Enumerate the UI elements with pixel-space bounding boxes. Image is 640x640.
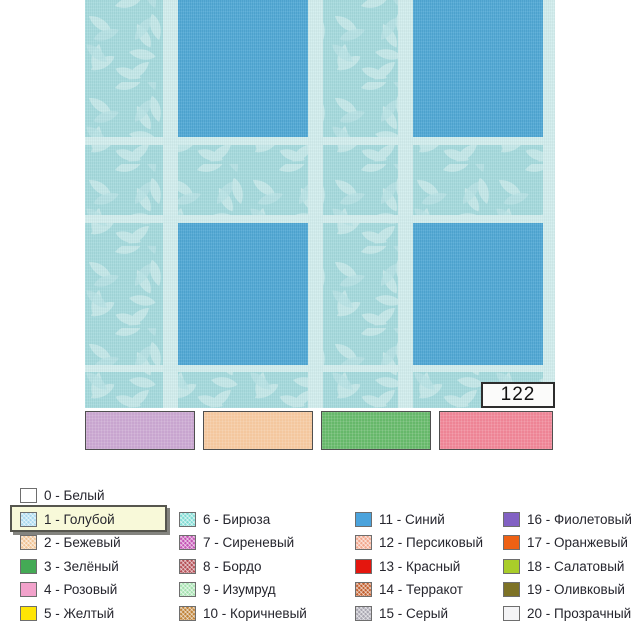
legend-item-15[interactable]: 15 - Серый — [355, 602, 483, 626]
light-stripe — [543, 0, 555, 408]
color-swatch — [179, 606, 196, 621]
legend-item-8[interactable]: 8 - Бордо — [179, 555, 307, 579]
legend-item-5[interactable]: 5 - Желтый — [20, 602, 121, 626]
legend-column-2: 6 - Бирюза 7 - Сиреневый 8 - Бордо 9 - И… — [179, 508, 307, 626]
fabric-pattern-sample: 122 — [85, 0, 555, 408]
pattern-code: 122 — [501, 384, 536, 406]
color-swatch — [503, 559, 520, 574]
legend-item-18[interactable]: 18 - Салатовый — [503, 555, 632, 579]
color-swatch — [179, 535, 196, 550]
legend-item-label: 0 - Белый — [44, 488, 105, 503]
light-stripe — [85, 215, 555, 223]
legend-item-19[interactable]: 19 - Оливковый — [503, 578, 632, 602]
color-swatch — [355, 559, 372, 574]
legend-column-1: 0 - Белый 1 - Голубой 2 - Бежевый 3 - Зе… — [20, 484, 121, 625]
blue-square — [178, 223, 308, 365]
light-stripe — [308, 0, 323, 408]
legend-item-6[interactable]: 6 - Бирюза — [179, 508, 307, 532]
legend-item-14[interactable]: 14 - Терракот — [355, 578, 483, 602]
legend-item-label: 1 - Голубой — [44, 512, 115, 527]
light-stripe — [85, 365, 555, 372]
legend-item-label: 15 - Серый — [379, 606, 448, 621]
legend-item-label: 13 - Красный — [379, 559, 460, 574]
legend-item-4[interactable]: 4 - Розовый — [20, 578, 121, 602]
legend-item-label: 17 - Оранжевый — [527, 535, 628, 550]
legend-item-13[interactable]: 13 - Красный — [355, 555, 483, 579]
pattern-code-box: 122 — [481, 382, 555, 408]
blue-square — [413, 223, 543, 365]
color-swatch — [179, 582, 196, 597]
legend-item-label: 18 - Салатовый — [527, 559, 624, 574]
color-swatch — [20, 606, 37, 621]
legend-column-3: 11 - Синий 12 - Персиковый 13 - Красный … — [355, 508, 483, 626]
color-swatch — [179, 559, 196, 574]
legend-item-label: 11 - Синий — [379, 512, 445, 527]
color-swatch — [503, 582, 520, 597]
legend-item-11[interactable]: 11 - Синий — [355, 508, 483, 532]
legend-item-label: 19 - Оливковый — [527, 582, 625, 597]
sample-swatch-green[interactable] — [321, 411, 431, 450]
color-swatch — [355, 512, 372, 527]
color-swatch — [20, 559, 37, 574]
legend-item-2[interactable]: 2 - Бежевый — [20, 531, 121, 555]
legend-item-12[interactable]: 12 - Персиковый — [355, 531, 483, 555]
color-swatch — [355, 606, 372, 621]
legend-item-label: 14 - Терракот — [379, 582, 463, 597]
color-swatch — [503, 606, 520, 621]
color-swatch — [20, 512, 37, 527]
light-stripe — [85, 137, 555, 145]
legend-item-label: 20 - Прозрачный — [527, 606, 631, 621]
legend-item-label: 9 - Изумруд — [203, 582, 276, 597]
light-stripe — [163, 0, 178, 408]
color-swatch — [503, 512, 520, 527]
legend-item-16[interactable]: 16 - Фиолетовый — [503, 508, 632, 532]
legend-item-3[interactable]: 3 - Зелёный — [20, 555, 121, 579]
light-stripe — [398, 0, 413, 408]
legend-item-17[interactable]: 17 - Оранжевый — [503, 531, 632, 555]
legend-item-label: 10 - Коричневый — [203, 606, 307, 621]
color-swatch — [20, 488, 37, 503]
legend-item-label: 12 - Персиковый — [379, 535, 483, 550]
color-swatch — [20, 582, 37, 597]
legend-item-label: 7 - Сиреневый — [203, 535, 294, 550]
legend-item-label: 16 - Фиолетовый — [527, 512, 632, 527]
legend-item-label: 6 - Бирюза — [203, 512, 270, 527]
legend-item-0[interactable]: 0 - Белый — [20, 484, 121, 508]
legend-item-7[interactable]: 7 - Сиреневый — [179, 531, 307, 555]
legend-item-label: 8 - Бордо — [203, 559, 261, 574]
color-swatch — [179, 512, 196, 527]
legend-item-label: 5 - Желтый — [44, 606, 114, 621]
catalog-page: { "pattern": { "code": "122", "colors": … — [0, 0, 640, 640]
legend-item-label: 3 - Зелёный — [44, 559, 119, 574]
blue-square — [413, 0, 543, 137]
legend-column-4: 16 - Фиолетовый 17 - Оранжевый 18 - Сала… — [503, 508, 632, 626]
legend-item-label: 4 - Розовый — [44, 582, 117, 597]
legend-item-9[interactable]: 9 - Изумруд — [179, 578, 307, 602]
blue-square — [178, 0, 308, 137]
sample-swatch-lilac[interactable] — [85, 411, 195, 450]
legend-item-10[interactable]: 10 - Коричневый — [179, 602, 307, 626]
legend-item-1-selected[interactable]: 1 - Голубой — [20, 508, 121, 532]
sample-swatch-peach[interactable] — [203, 411, 313, 450]
color-swatch — [20, 535, 37, 550]
legend-item-label: 2 - Бежевый — [44, 535, 121, 550]
legend-item-20[interactable]: 20 - Прозрачный — [503, 602, 632, 626]
color-swatch — [355, 535, 372, 550]
sample-swatch-pink[interactable] — [439, 411, 553, 450]
color-swatch — [355, 582, 372, 597]
color-swatch — [503, 535, 520, 550]
